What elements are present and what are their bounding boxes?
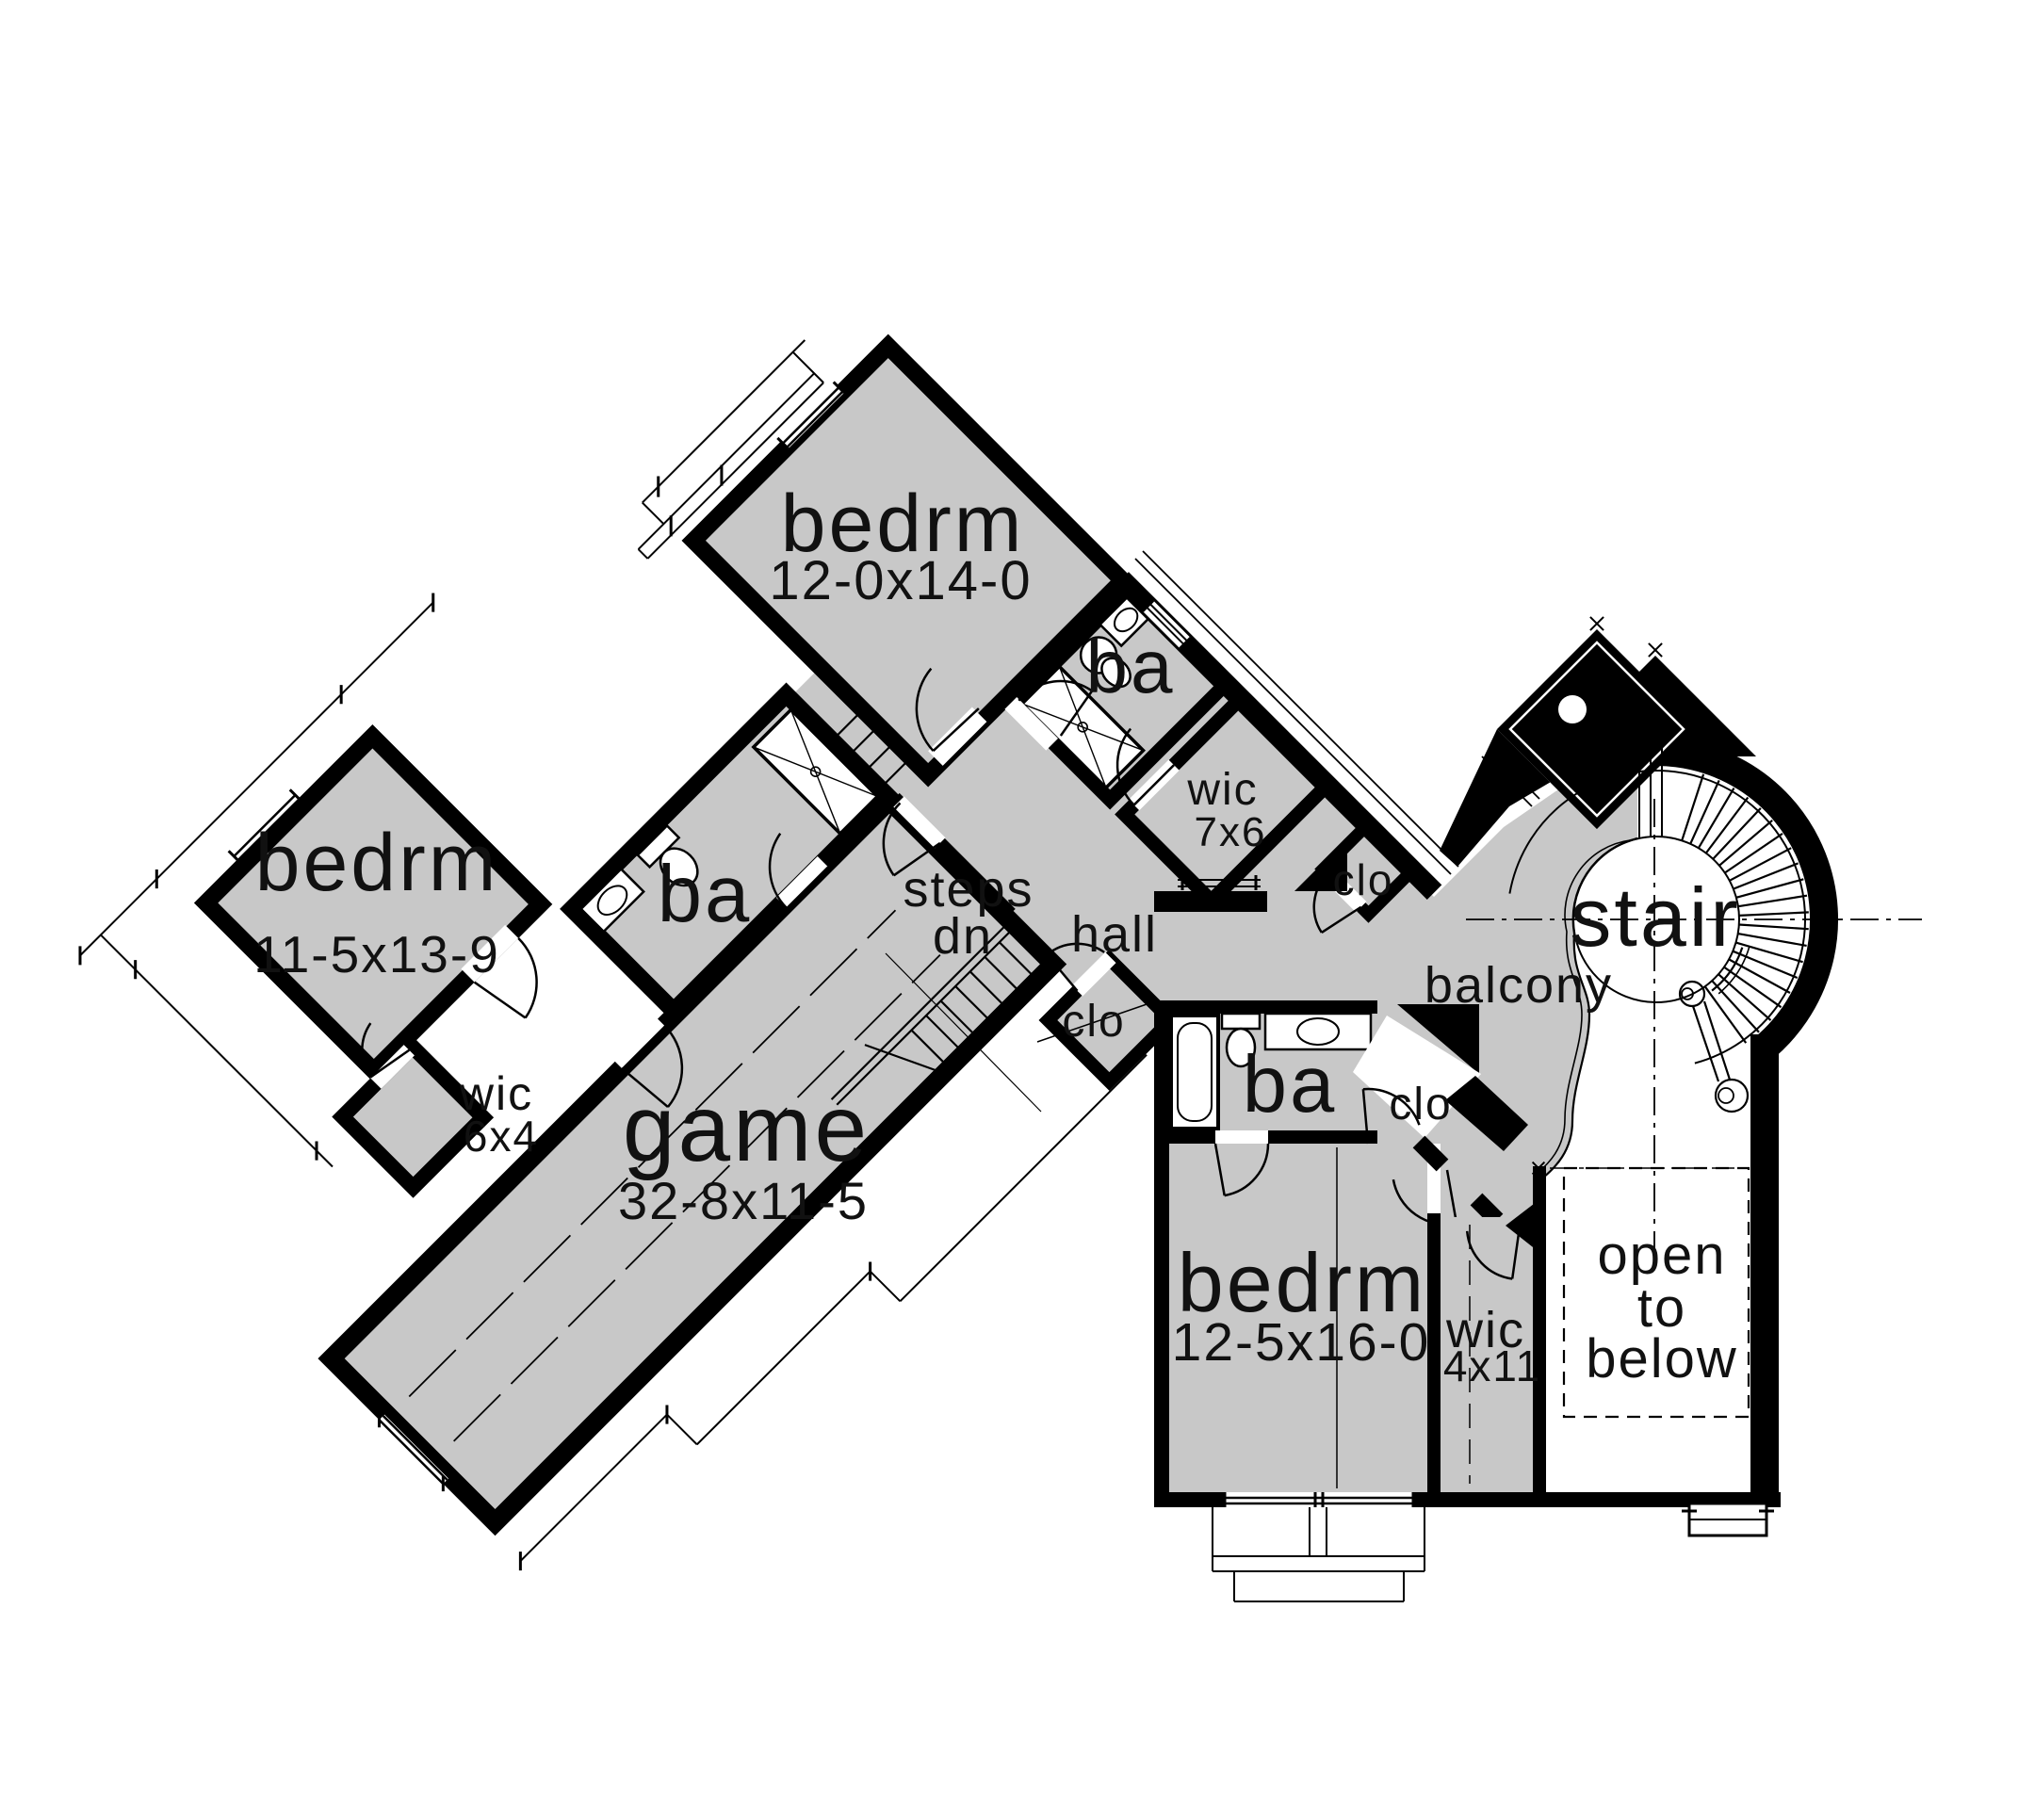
svg-text:32-8x11-5: 32-8x11-5 (618, 1171, 869, 1230)
svg-text:7x6: 7x6 (1195, 809, 1267, 855)
svg-text:below: below (1586, 1328, 1738, 1389)
svg-text:dn: dn (933, 908, 993, 965)
svg-text:ba: ba (1086, 625, 1176, 708)
svg-text:ba: ba (658, 850, 753, 939)
svg-text:clo: clo (1333, 855, 1394, 904)
svg-text:stair: stair (1570, 870, 1740, 964)
svg-text:ba: ba (1243, 1040, 1338, 1129)
svg-text:game: game (623, 1076, 870, 1181)
svg-text:balcony: balcony (1424, 957, 1613, 1014)
svg-text:clo: clo (1062, 997, 1125, 1047)
svg-text:6x4: 6x4 (464, 1112, 539, 1161)
svg-text:hall: hall (1071, 906, 1158, 963)
svg-text:clo: clo (1389, 1080, 1452, 1129)
svg-text:12-5x16-0: 12-5x16-0 (1172, 1312, 1431, 1373)
svg-text:bedrm: bedrm (255, 818, 499, 908)
svg-text:wic: wic (1186, 765, 1258, 815)
svg-text:11-5x13-9: 11-5x13-9 (253, 925, 500, 983)
svg-text:4x11: 4x11 (1443, 1341, 1541, 1390)
svg-text:12-0x14-0: 12-0x14-0 (769, 550, 1032, 611)
